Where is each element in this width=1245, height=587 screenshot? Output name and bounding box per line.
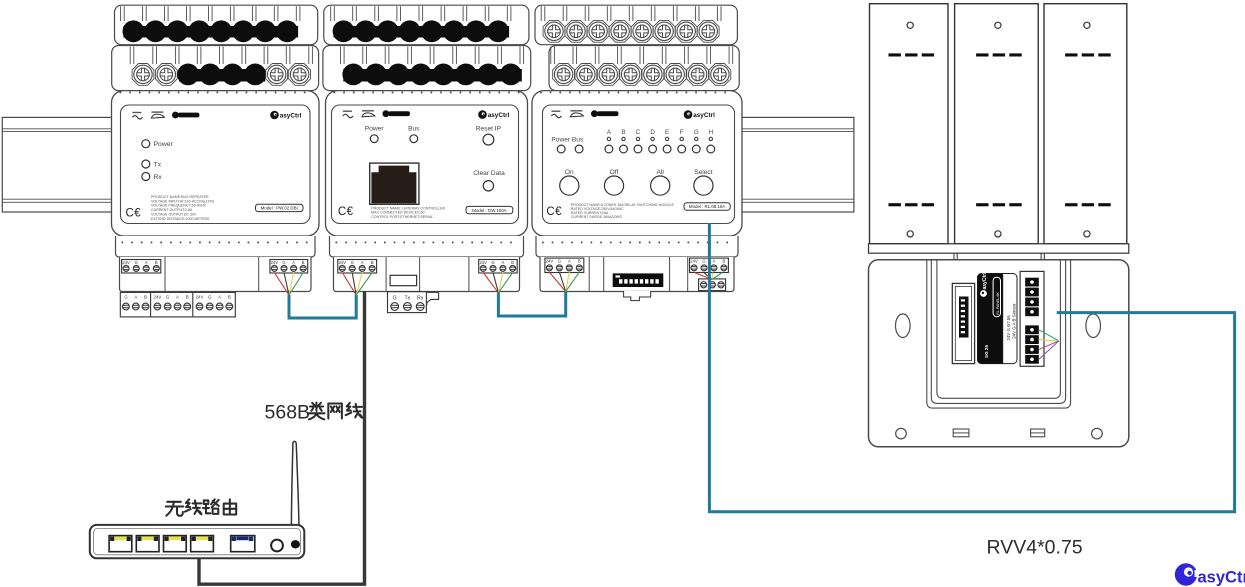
svg-text:RL.PANEL.8K: RL.PANEL.8K: [996, 292, 1000, 315]
svg-text:SG 25: SG 25: [984, 345, 989, 358]
svg-text:G: G: [393, 295, 397, 301]
svg-text:24V: 24V: [271, 260, 279, 265]
svg-text:EXTEND DISTANCE:1000 METERS: EXTEND DISTANCE:1000 METERS: [151, 217, 210, 221]
svg-text:Tx: Tx: [405, 295, 411, 301]
svg-text:Clear Data: Clear Data: [473, 170, 505, 177]
svg-text:B: B: [302, 260, 305, 265]
svg-text:B: B: [511, 260, 514, 265]
svg-text:Bus: Bus: [408, 125, 420, 132]
svg-text:24V: 24V: [122, 260, 130, 265]
svg-text:asyCtrl: asyCtrl: [1198, 569, 1245, 587]
svg-text:B: B: [723, 259, 726, 264]
svg-text:G: G: [124, 295, 128, 300]
svg-text:B: B: [155, 260, 158, 265]
svg-text:PRODUCT NAME: GATEWAY CONTROLL: PRODUCT NAME: GATEWAY CONTROLLER: [371, 206, 445, 210]
svg-text:C€: C€: [338, 206, 354, 218]
svg-text:24V: 24V: [196, 295, 204, 300]
svg-text:G: G: [282, 260, 285, 265]
svg-text:Model : GW.100A: Model : GW.100A: [472, 208, 506, 213]
svg-text:G: G: [491, 260, 494, 265]
svg-text:Power Bus: Power Bus: [551, 137, 584, 144]
svg-text:G: G: [558, 259, 561, 264]
svg-text:G: G: [351, 260, 354, 265]
svg-text:H: H: [709, 129, 713, 136]
svg-text:VOLTAGE OUTPUT:DC 30V: VOLTAGE OUTPUT:DC 30V: [151, 212, 197, 216]
svg-text:Power: Power: [154, 141, 174, 148]
svg-text:568B: 568B: [265, 402, 311, 424]
svg-text:A: A: [568, 259, 571, 264]
svg-text:asyCtrl: asyCtrl: [982, 272, 988, 290]
svg-text:C€: C€: [126, 208, 142, 220]
svg-text:24V: 24V: [479, 260, 487, 265]
svg-text:24V G B7 56: 24V G B7 56: [1006, 315, 1011, 341]
svg-text:B: B: [144, 295, 147, 300]
svg-text:A: A: [176, 295, 179, 300]
svg-text:RVV4*0.75: RVV4*0.75: [987, 537, 1083, 559]
svg-text:A: A: [713, 259, 716, 264]
svg-text:D: D: [650, 129, 655, 136]
svg-text:G: G: [166, 295, 170, 300]
svg-text:asyCtrl: asyCtrl: [280, 113, 302, 120]
svg-text:F: F: [680, 129, 684, 136]
svg-text:asyCtrl: asyCtrl: [488, 112, 510, 119]
svg-text:24V G A B Sensor: 24V G A B Sensor: [1011, 303, 1016, 339]
svg-text:24V: 24V: [153, 295, 161, 300]
svg-text:Power: Power: [365, 125, 384, 132]
svg-text:asyCtrl: asyCtrl: [693, 112, 715, 119]
svg-text:C€: C€: [546, 206, 562, 218]
svg-text:All: All: [657, 169, 665, 176]
svg-text:Model : PW.02.DBI: Model : PW.02.DBI: [261, 206, 298, 211]
svg-text:VOLTAGE INPUT:AC110-AC220(±10%: VOLTAGE INPUT:AC110-AC220(±10%): [151, 199, 214, 203]
svg-text:A: A: [218, 295, 221, 300]
svg-text:CONTROL PORT:ETHERNET/SERIAL: CONTROL PORT:ETHERNET/SERIAL: [371, 215, 433, 219]
svg-text:B: B: [228, 295, 231, 300]
svg-text:Tx: Tx: [154, 162, 162, 169]
svg-text:B: B: [186, 295, 189, 300]
svg-text:A: A: [145, 260, 148, 265]
svg-text:B: B: [371, 260, 374, 265]
svg-text:Rx: Rx: [154, 174, 163, 181]
svg-text:Off: Off: [610, 169, 619, 176]
svg-text:Rx: Rx: [417, 295, 424, 301]
svg-text:B: B: [578, 259, 581, 264]
svg-text:24V: 24V: [546, 259, 554, 264]
svg-text:24V: 24V: [690, 259, 698, 264]
svg-text:C: C: [636, 129, 641, 136]
svg-text:G: G: [135, 260, 138, 265]
svg-text:A: A: [361, 260, 364, 265]
svg-text:Select: Select: [694, 169, 712, 176]
svg-text:On: On: [565, 169, 574, 176]
svg-text:G: G: [694, 129, 699, 136]
svg-text:24V: 24V: [339, 260, 347, 265]
svg-text:CURRENT SURGE:160A/20MS: CURRENT SURGE:160A/20MS: [571, 215, 623, 219]
svg-text:B: B: [621, 129, 625, 136]
svg-text:Model : RL.08.16A: Model : RL.08.16A: [689, 204, 725, 209]
svg-text:E: E: [665, 129, 669, 136]
svg-text:G: G: [208, 295, 212, 300]
svg-text:A: A: [502, 260, 505, 265]
svg-text:A: A: [292, 260, 295, 265]
svg-text:A: A: [134, 295, 137, 300]
svg-text:G: G: [702, 259, 705, 264]
svg-text:Reset IP: Reset IP: [476, 125, 502, 132]
svg-text:VOLTAGE FREQUENCY:50-60HZ: VOLTAGE FREQUENCY:50-60HZ: [151, 204, 207, 208]
